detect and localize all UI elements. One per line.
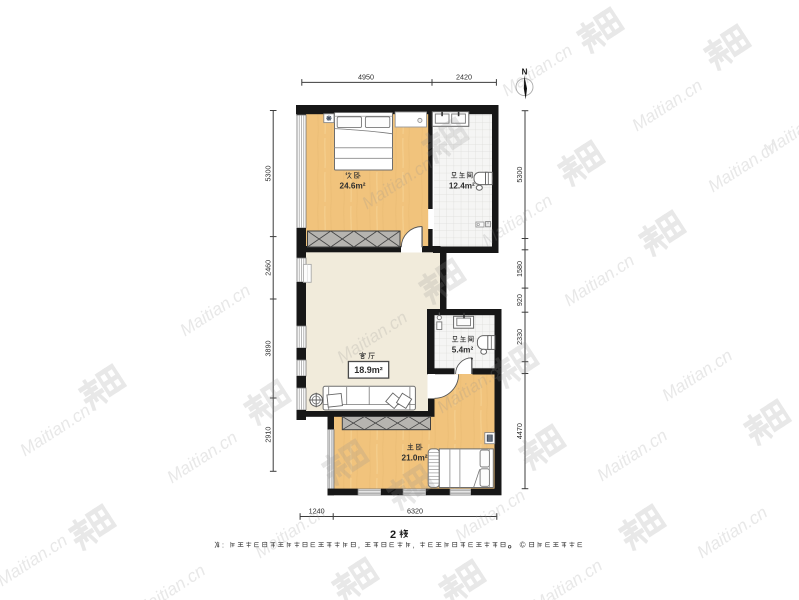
svg-text:,: , xyxy=(413,541,415,550)
svg-text:©: © xyxy=(520,541,526,550)
svg-text:,: , xyxy=(358,541,360,550)
svg-text:6320: 6320 xyxy=(407,507,423,516)
svg-text:4950: 4950 xyxy=(358,73,374,82)
svg-text:4470: 4470 xyxy=(515,423,524,439)
svg-text:18.9m²: 18.9m² xyxy=(354,365,383,375)
svg-text:5300: 5300 xyxy=(263,166,272,182)
svg-text:2: 2 xyxy=(390,529,396,541)
svg-text:2910: 2910 xyxy=(263,427,272,443)
svg-text:2330: 2330 xyxy=(515,329,524,345)
svg-text:3890: 3890 xyxy=(263,341,272,357)
svg-text::: : xyxy=(222,542,224,549)
svg-text:5300: 5300 xyxy=(515,167,524,183)
svg-text:920: 920 xyxy=(515,294,524,306)
svg-text:1580: 1580 xyxy=(515,261,524,277)
svg-text:2420: 2420 xyxy=(456,73,472,82)
svg-text:21.0m²: 21.0m² xyxy=(402,454,428,463)
svg-text:2460: 2460 xyxy=(263,260,272,276)
svg-text:24.6m²: 24.6m² xyxy=(340,182,366,191)
svg-text:5.4m²: 5.4m² xyxy=(452,346,474,355)
svg-text:12.4m²: 12.4m² xyxy=(449,182,475,191)
